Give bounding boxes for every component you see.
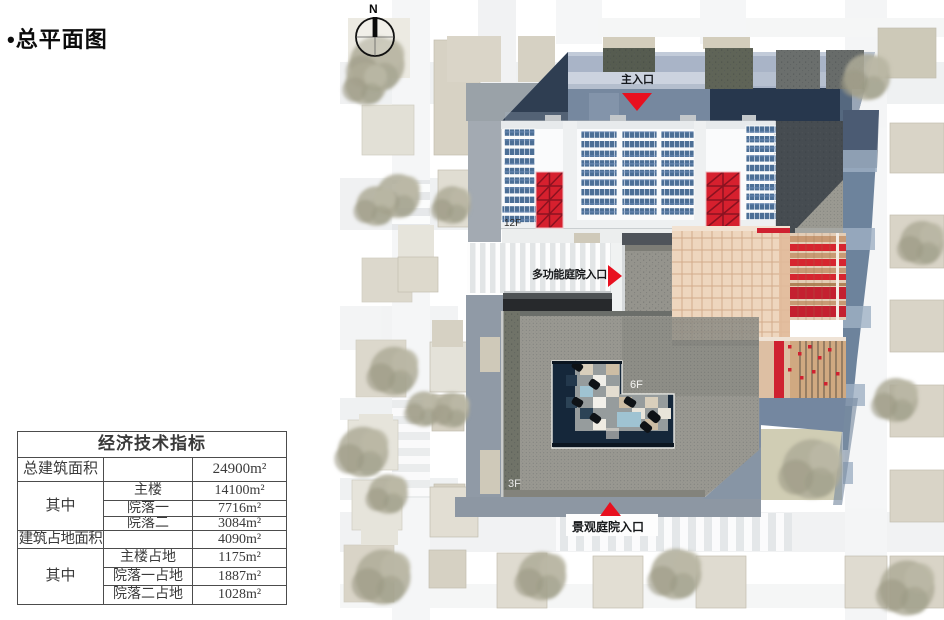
- svg-text:主入口: 主入口: [621, 72, 654, 86]
- svg-text:3F: 3F: [508, 478, 521, 490]
- svg-text:N: N: [369, 2, 378, 16]
- svg-text:多功能庭院入口: 多功能庭院入口: [532, 267, 607, 281]
- svg-text:12F: 12F: [504, 218, 521, 229]
- svg-text:景观庭院入口: 景观庭院入口: [572, 519, 644, 534]
- svg-text:6F: 6F: [630, 379, 643, 391]
